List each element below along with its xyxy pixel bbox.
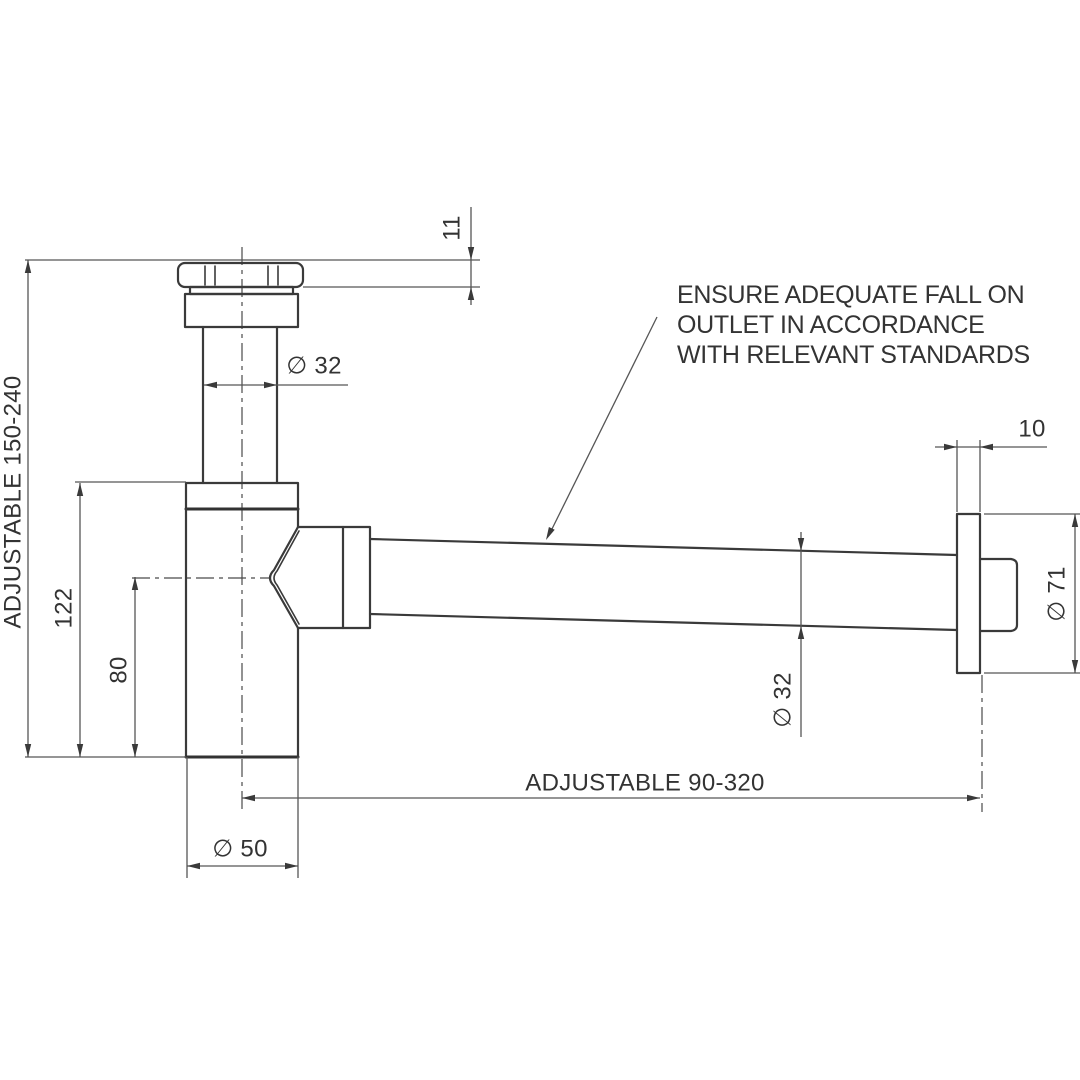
note-line-2: OUTLET IN ACCORDANCE [677,311,984,339]
bottle-trap-technical-drawing: ADJUSTABLE 150-240 122 80 11 ∅ 32 ∅ 50 [0,0,1080,1080]
dim-body-diameter-label: ∅ 50 [212,836,267,863]
dim-body-height: 122 [51,483,84,757]
hex-nut [178,263,303,287]
dim-nut-height-label: 11 [439,215,466,241]
dim-outlet-diameter: ∅ 32 [770,532,805,737]
fitting-body [298,527,370,628]
wall-socket [980,559,1017,631]
dim-outlet-centre-height: 80 [106,577,139,757]
drawing-svg: ADJUSTABLE 150-240 122 80 11 ∅ 32 ∅ 50 [0,0,1080,1080]
dim-body-diameter: ∅ 50 [187,836,298,870]
dim-outlet-centre-height-label: 80 [106,656,133,683]
note-line-3: WITH RELEVANT STANDARDS [677,341,1030,369]
dim-inlet-diameter-label: ∅ 32 [286,353,341,380]
dim-flange-depth: 10 [935,416,1047,451]
dim-inlet-adjustable: ADJUSTABLE 150-240 [0,260,31,757]
dim-inlet-adjustable-label: ADJUSTABLE 150-240 [0,375,27,628]
dim-nut-height: 11 [439,207,475,305]
dim-flange-diameter-label: ∅ 71 [1044,566,1071,621]
dim-outlet-adjustable-label: ADJUSTABLE 90-320 [525,770,764,797]
note-leader-arrowhead [546,527,555,540]
dim-flange-diameter: ∅ 71 [1044,514,1079,673]
trap-body [186,483,298,757]
dim-flange-depth-label: 10 [1018,416,1045,443]
outlet-pipe [370,539,957,630]
note-line-1: ENSURE ADEQUATE FALL ON [677,281,1024,309]
dim-outlet-adjustable: ADJUSTABLE 90-320 [242,770,980,802]
dim-body-height-label: 122 [51,588,78,629]
inlet-pipe [203,327,277,483]
dim-outlet-diameter-label: ∅ 32 [770,672,797,727]
elbow-fitting [270,527,370,628]
note-leader-line [549,317,657,535]
wall-flange [957,514,980,673]
